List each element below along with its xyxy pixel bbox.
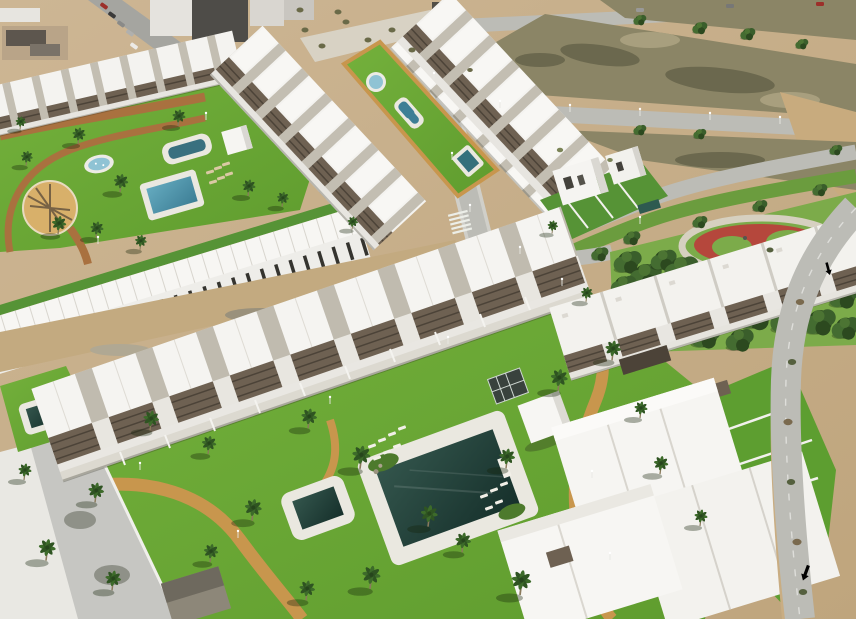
town-roof <box>6 30 46 46</box>
shrub <box>607 158 613 162</box>
shrub <box>319 44 326 49</box>
shrub <box>788 359 796 365</box>
shrub <box>557 148 563 153</box>
car <box>636 8 644 12</box>
shrub <box>365 38 372 43</box>
scrub-patch <box>620 32 680 48</box>
car <box>816 2 824 6</box>
town-roof <box>0 8 40 22</box>
shrub <box>389 28 396 33</box>
town-roof <box>150 0 192 36</box>
play-structure <box>743 236 747 240</box>
shrub <box>799 589 807 595</box>
shrub <box>302 28 309 33</box>
scene-canvas <box>0 0 856 619</box>
aerial-development-render <box>0 0 856 619</box>
shrub <box>297 8 304 13</box>
shrub <box>335 10 342 15</box>
car <box>726 4 734 8</box>
shrub <box>343 20 350 25</box>
town-roof <box>250 0 284 26</box>
scrub-patch <box>515 53 565 67</box>
shrub <box>796 299 804 305</box>
shrub <box>767 248 774 253</box>
shrub <box>787 479 795 485</box>
round-pool <box>366 72 386 92</box>
town-roof <box>30 44 60 56</box>
shrub <box>409 48 416 53</box>
tree-shadow <box>64 511 96 529</box>
shrub <box>783 419 792 426</box>
shrub <box>792 539 801 546</box>
shrub <box>467 68 473 72</box>
